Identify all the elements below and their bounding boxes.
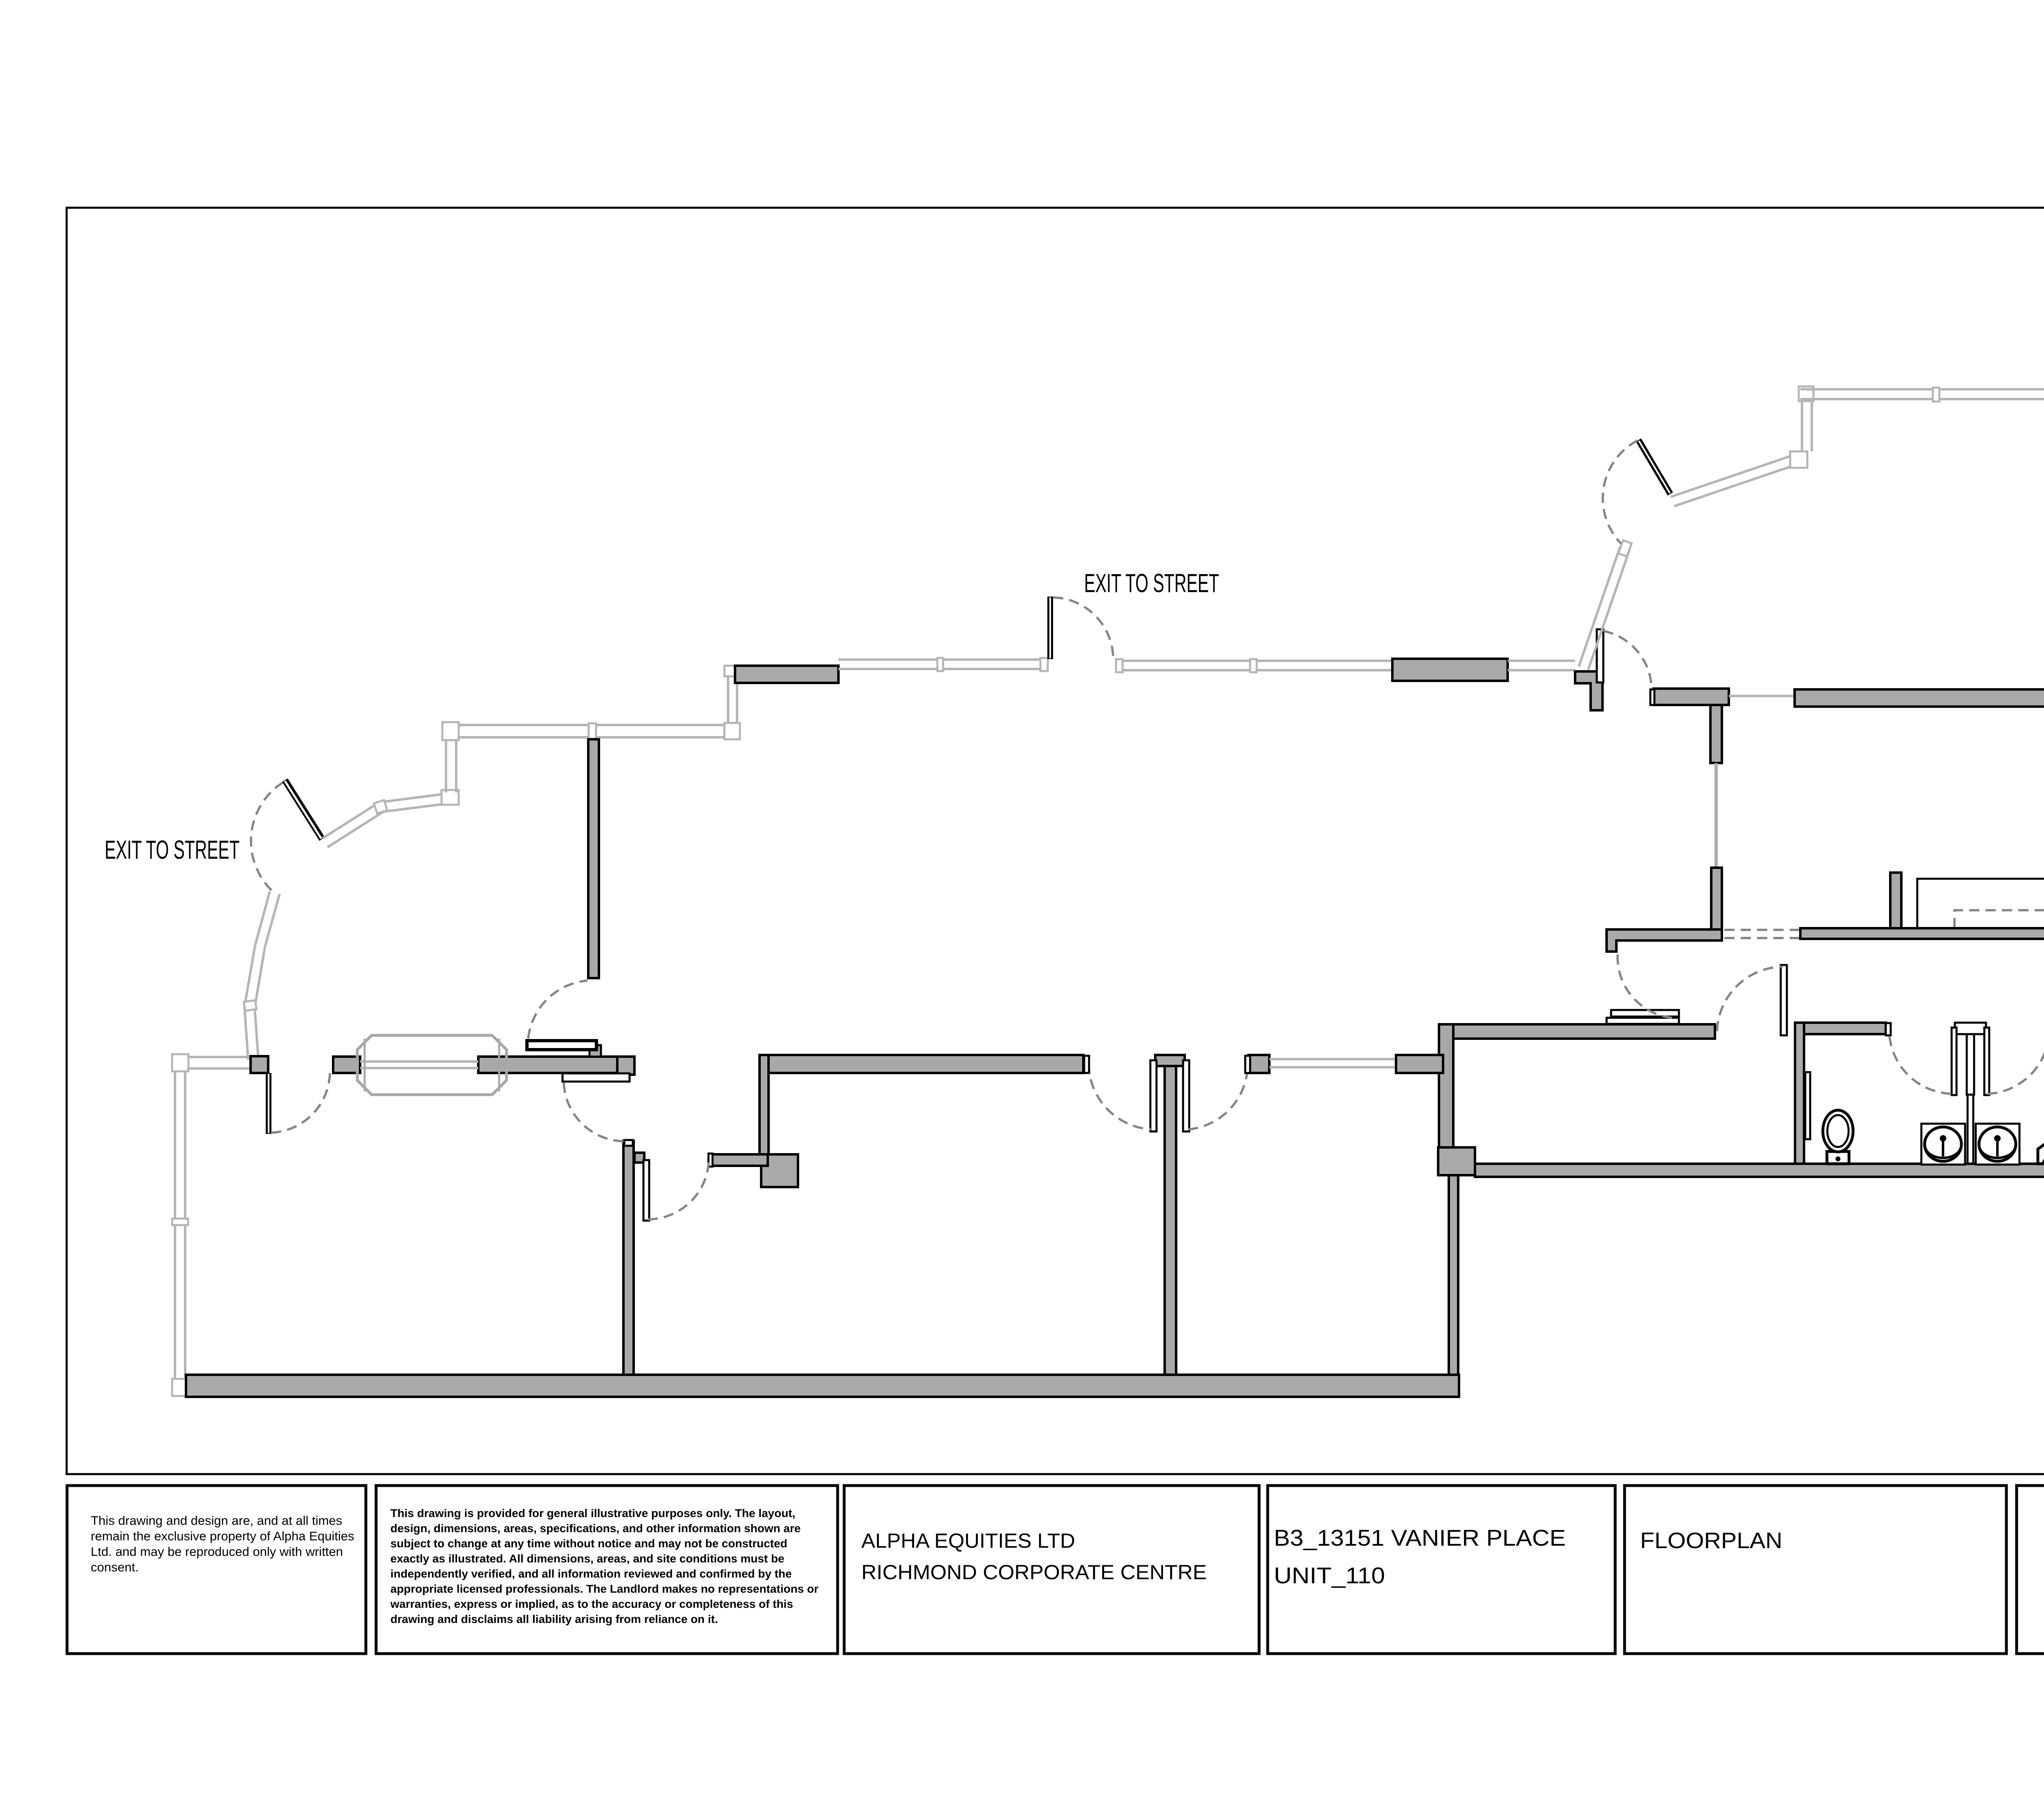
svg-text:This drawing is provided for g: This drawing is provided for general ill… bbox=[390, 1507, 796, 1519]
svg-text:RICHMOND CORPORATE CENTRE: RICHMOND CORPORATE CENTRE bbox=[861, 1561, 1207, 1584]
svg-text:warranties, express or implied: warranties, express or implied, as to th… bbox=[390, 1598, 793, 1610]
svg-text:ALPHA EQUITIES LTD: ALPHA EQUITIES LTD bbox=[861, 1529, 1075, 1552]
svg-text:B3_13151 VANIER PLACE: B3_13151 VANIER PLACE bbox=[1274, 1525, 1566, 1551]
svg-text:EXIT TO STREET: EXIT TO STREET bbox=[105, 835, 240, 864]
svg-text:This drawing and design are, a: This drawing and design are, and at all … bbox=[91, 1513, 342, 1528]
svg-text:Ltd. and may be reproduced onl: Ltd. and may be reproduced only with wri… bbox=[91, 1544, 343, 1559]
svg-text:FLOORPLAN: FLOORPLAN bbox=[1640, 1528, 1782, 1553]
svg-text:design, dimensions, areas, spe: design, dimensions, areas, specification… bbox=[390, 1522, 801, 1535]
svg-text:appropriate licensed professio: appropriate licensed professionals. The … bbox=[390, 1582, 818, 1595]
svg-text:consent.: consent. bbox=[91, 1560, 139, 1574]
svg-text:UNIT_110: UNIT_110 bbox=[1274, 1562, 1385, 1588]
svg-text:independently verified, and al: independently verified, and all informat… bbox=[390, 1567, 792, 1580]
svg-text:drawing and disclaims all liab: drawing and disclaims all liability aris… bbox=[390, 1613, 718, 1625]
svg-text:exactly as illustrated. All di: exactly as illustrated. All dimensions, … bbox=[390, 1552, 784, 1565]
svg-text:EXIT TO STREET: EXIT TO STREET bbox=[1084, 568, 1219, 598]
svg-text:remain the exclusive property: remain the exclusive property of Alpha E… bbox=[91, 1529, 354, 1543]
svg-text:subject to change at any time: subject to change at any time without no… bbox=[390, 1537, 787, 1550]
